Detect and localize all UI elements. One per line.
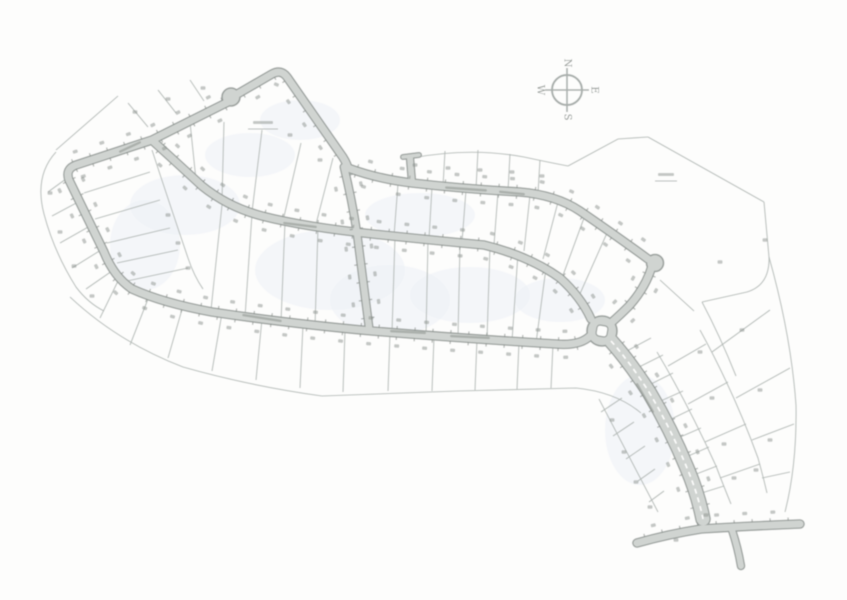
plat-drawing: NESW (0, 0, 847, 600)
roundabout-island (596, 325, 609, 338)
compass-letter-n: N (562, 59, 573, 68)
annotation-text-smudge (253, 121, 273, 124)
compass-letter-w: W (535, 85, 546, 96)
plat-page: NESW (0, 0, 847, 600)
annotation-text-smudge (658, 173, 674, 176)
north-stub-flare (403, 155, 419, 157)
compass-letter-e: E (589, 86, 600, 93)
compass-letter-s: S (562, 114, 573, 121)
plat-map-svg: NESW (0, 0, 847, 600)
subdivision-plat-map: NESW (0, 0, 847, 600)
